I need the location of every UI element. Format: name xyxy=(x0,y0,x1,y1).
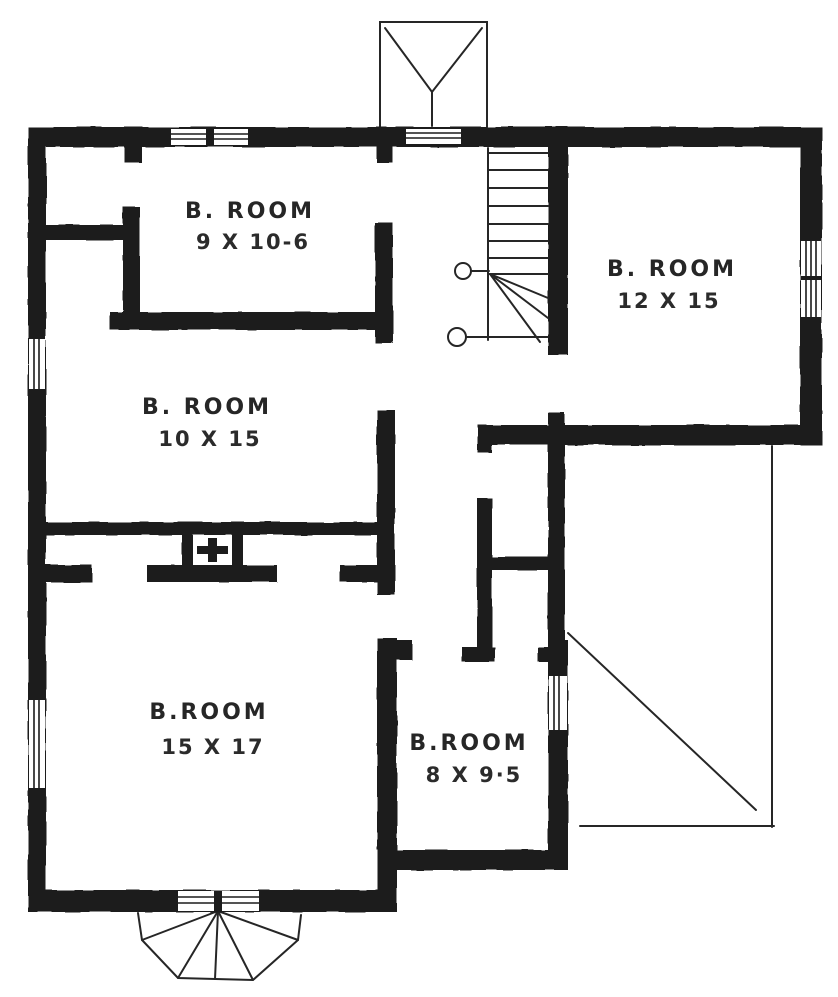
room-size: 10 X 15 xyxy=(158,427,261,451)
staircase xyxy=(448,148,548,346)
room-label: B.ROOM xyxy=(409,731,528,756)
bay-window-top xyxy=(380,22,487,127)
bay-window-bottom xyxy=(138,911,301,980)
room-labels: B. ROOM 9 X 10-6 B. ROOM 10 X 15 B. ROOM… xyxy=(142,199,737,787)
room-size: 8 X 9·5 xyxy=(426,763,523,787)
porch-roof-outline xyxy=(568,446,774,827)
room-label: B. ROOM xyxy=(142,395,272,420)
floor-plan-page: B. ROOM 9 X 10-6 B. ROOM 10 X 15 B. ROOM… xyxy=(0,0,838,997)
room-size: 15 X 17 xyxy=(161,735,264,759)
floor-plan-canvas: B. ROOM 9 X 10-6 B. ROOM 10 X 15 B. ROOM… xyxy=(0,0,838,997)
newel-post-icon xyxy=(455,263,471,279)
newel-post-icon xyxy=(448,328,466,346)
windows xyxy=(29,129,821,911)
chimney-flue-icon xyxy=(193,535,232,565)
room-size: 9 X 10-6 xyxy=(196,230,310,254)
room-label: B. ROOM xyxy=(185,199,315,224)
exterior-walls xyxy=(28,127,822,912)
room-label: B.ROOM xyxy=(149,700,268,725)
room-label: B. ROOM xyxy=(607,257,737,282)
room-size: 12 X 15 xyxy=(617,289,720,313)
